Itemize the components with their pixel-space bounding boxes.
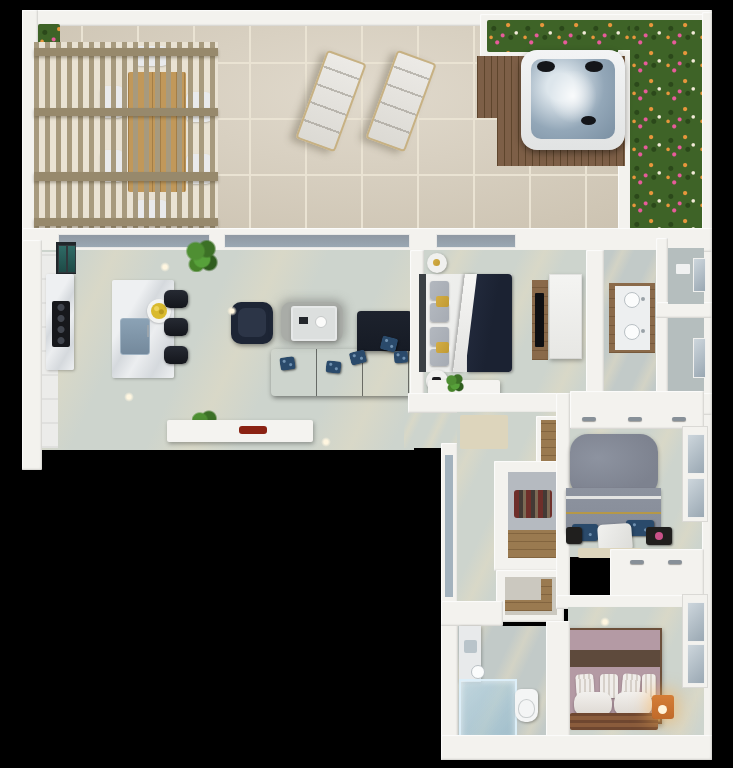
pergola: [34, 42, 218, 230]
hanging-clothes: [514, 490, 552, 518]
bed2-big-pillow: [570, 434, 658, 494]
bedroom3-bed: [566, 628, 662, 724]
bathroom2-east-wall: [546, 621, 570, 741]
island-faucet: [147, 325, 149, 337]
closet-handle: [630, 560, 644, 564]
pergola-beam: [34, 108, 218, 116]
bedroom3-striped-rug: [570, 713, 658, 730]
hot-tub-headrest: [537, 61, 555, 72]
window-pane: [687, 434, 705, 474]
window-pane: [687, 478, 705, 518]
tall-fridge-unit: [56, 242, 76, 274]
bottom-wall: [441, 735, 712, 760]
closet-bench: [541, 579, 552, 611]
closet-handle: [628, 417, 642, 421]
tv: [535, 293, 544, 347]
living-left-wall: [22, 240, 42, 470]
fridge-glass-door: [67, 245, 76, 273]
fridge-glass-door: [58, 245, 67, 273]
island-sink: [120, 318, 150, 355]
apartment-floor-plan-3d-render: [0, 0, 733, 768]
wardrobe-dresser: [549, 274, 582, 359]
window-pane: [687, 602, 705, 642]
bedroom2-window: [682, 426, 708, 522]
window-pane: [687, 644, 705, 684]
faucet-dot: [641, 329, 645, 333]
bedroom1-nightstand: [427, 253, 447, 273]
flower-hedge-right: [630, 20, 704, 230]
ceiling-light-dot: [600, 617, 610, 627]
faucet-dot: [641, 297, 645, 301]
ceiling-light-dot: [321, 437, 331, 447]
bedroom2-north-closet: [570, 391, 704, 429]
bar-stool: [164, 290, 188, 308]
hot-tub-headrest: [581, 116, 596, 125]
hot-tub: [521, 50, 625, 150]
coffee-table: [291, 306, 337, 341]
pergola-beam: [34, 218, 218, 226]
small-plant: [446, 374, 464, 392]
bedroom1-bathroom1-wall: [586, 250, 604, 395]
pergola-beam: [34, 172, 218, 181]
closet-handle: [668, 560, 682, 564]
vanity-sink: [624, 324, 640, 340]
bedroom1-bed: [419, 274, 512, 372]
bar-stool: [164, 318, 188, 336]
potted-plant: [186, 240, 218, 272]
bedroom3-window: [682, 594, 708, 688]
cooktop: [52, 301, 70, 347]
wc-cistern: [676, 264, 690, 274]
bedroom2-nightstand: [566, 527, 582, 544]
pergola-slats: [34, 42, 218, 230]
closet-handle: [582, 417, 596, 421]
throw-pillow: [279, 356, 296, 371]
throw-pillow: [394, 351, 409, 364]
pergola-beam: [34, 48, 218, 56]
throw-pillow: [325, 360, 341, 374]
bathroom1-window: [693, 258, 706, 292]
hall-glass-panel: [445, 455, 453, 597]
ceiling-light-dot: [227, 306, 237, 316]
shower-head: [471, 665, 485, 679]
glass-shower: [459, 679, 517, 742]
hot-tub-headrest: [585, 61, 603, 72]
bed1-headboard: [419, 274, 426, 372]
toilet: [515, 689, 538, 722]
bed1-gold-cushion: [436, 342, 449, 353]
bathroom1-window: [693, 338, 706, 378]
bar-stool: [164, 346, 188, 364]
lamp-light: [658, 705, 667, 714]
ceiling-light-dot: [160, 262, 170, 272]
duvet-gold-stripe: [566, 512, 661, 514]
armchair: [231, 302, 273, 344]
doormat: [460, 415, 508, 449]
bed1-gold-cushion: [436, 296, 449, 307]
closet-wood-floor: [508, 530, 558, 558]
vanity-sink: [624, 292, 640, 308]
bed3-brown-band: [568, 650, 660, 667]
vanity-sink-square: [464, 640, 477, 653]
duvet-white-stripe: [566, 496, 661, 499]
bathroom2-north-wall: [441, 601, 503, 626]
bedroom2-south-closet: [610, 549, 704, 598]
ceiling-light-dot: [124, 392, 134, 402]
bedroom2-nightstand: [646, 527, 672, 545]
vanity-counter: [615, 286, 650, 350]
gold-lamp: [433, 259, 440, 266]
red-decor-object: [239, 426, 267, 434]
sliding-glass-door: [224, 234, 410, 248]
glowing-nightstand: [652, 695, 674, 719]
bedroom1-window: [436, 234, 516, 248]
wc-room-divider: [656, 302, 712, 318]
flower-decor: [655, 532, 663, 540]
closet-handle: [672, 417, 686, 421]
